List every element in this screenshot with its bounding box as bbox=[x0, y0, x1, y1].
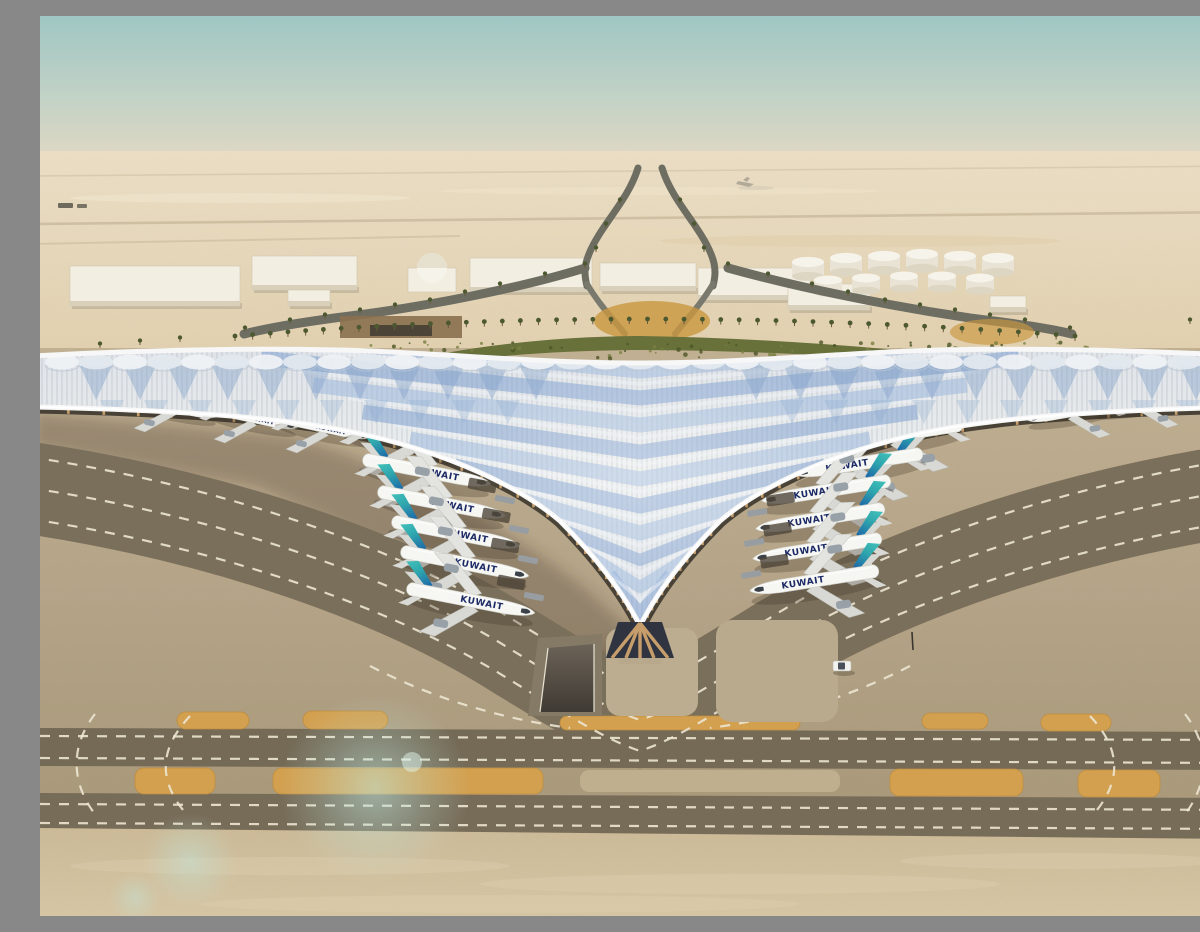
scene-canvas: KUWAITKUWAITKUWAITKUWAITKUWAITKUWAITKUWA… bbox=[40, 16, 1200, 916]
terminal-entrance bbox=[606, 622, 674, 664]
sky bbox=[40, 16, 1200, 168]
airport-aerial-rendering: Aerial architectural rendering of Kuwait… bbox=[40, 16, 1200, 916]
